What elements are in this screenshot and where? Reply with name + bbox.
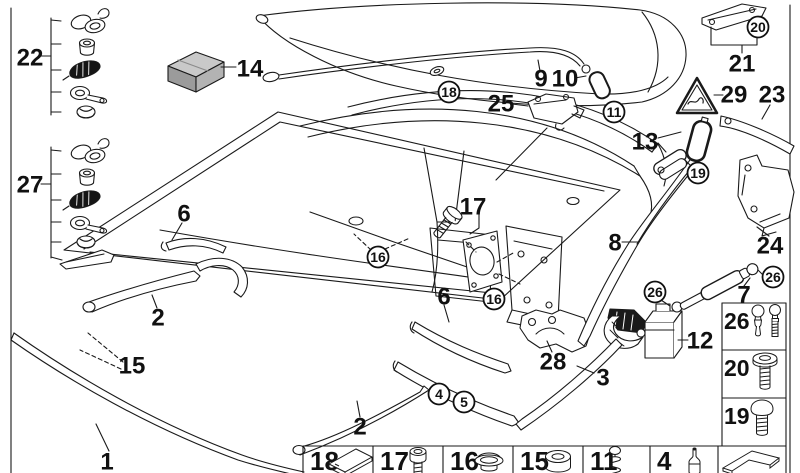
legend-number-26: 26	[724, 308, 750, 334]
fastener-column-27	[51, 139, 114, 269]
callout-7: 7	[737, 282, 750, 309]
seal-strip-2	[86, 271, 200, 312]
bracket-24	[738, 155, 794, 236]
callout-8: 8	[608, 230, 621, 257]
svg-text:5: 5	[460, 394, 468, 410]
screw-icon	[410, 448, 426, 473]
callout-2: 2	[151, 305, 164, 332]
callout-24: 24	[757, 233, 784, 260]
seal-strip-6-left	[166, 238, 226, 253]
callout-9: 9	[534, 66, 547, 93]
lock-cylinder-19	[685, 115, 714, 162]
seal-strip-2-corner	[196, 258, 248, 297]
strip-23	[720, 116, 794, 154]
callout-23: 23	[759, 82, 786, 109]
legend-number-16: 16	[450, 446, 479, 473]
callout-27: 27	[17, 172, 44, 199]
callout-circled-4: 4	[429, 384, 450, 405]
legend-number-17: 17	[380, 446, 409, 473]
fastener-column-22	[51, 9, 109, 118]
seal-strips-left	[11, 238, 304, 473]
exploded-parts-diagram: 18171615114262019 2227149102521292313824…	[0, 0, 800, 473]
legend-number-20: 20	[724, 355, 750, 381]
callout-circled-19: 19	[688, 163, 709, 184]
callout-circled-18: 18	[439, 82, 460, 103]
callout-10: 10	[552, 66, 579, 93]
seal-strip-6-center	[412, 322, 511, 373]
callout-14: 14	[237, 56, 264, 83]
flange-bolt-icon	[753, 353, 777, 389]
callout-circled-11: 11	[604, 102, 625, 123]
legend-number-18: 18	[310, 446, 339, 473]
callout-28: 28	[540, 349, 567, 376]
svg-text:16: 16	[370, 249, 386, 265]
callout-2: 2	[353, 414, 366, 441]
ball-stud-icon	[751, 400, 773, 435]
legend-number-19: 19	[724, 403, 750, 429]
cable-end-ball	[582, 65, 590, 73]
callout-circled-20: 20	[748, 17, 769, 38]
folded-strip-icon	[723, 451, 779, 473]
frame-grommet	[567, 198, 579, 205]
callout-6: 6	[437, 284, 450, 311]
callout-circled-26: 26	[645, 282, 666, 303]
seal-strip-1	[14, 333, 304, 472]
gasket-plate-17	[463, 231, 502, 292]
svg-text:16: 16	[486, 291, 502, 307]
svg-text:26: 26	[765, 269, 781, 285]
ball-pins-icon	[752, 305, 781, 337]
svg-text:11: 11	[607, 104, 622, 120]
ball-socket	[637, 329, 645, 337]
legend-number-15: 15	[520, 446, 549, 473]
callout-29: 29	[721, 82, 748, 109]
svg-text:26: 26	[647, 284, 663, 300]
callout-25: 25	[488, 91, 515, 118]
callout-15: 15	[119, 353, 146, 380]
warning-triangle-29	[677, 78, 717, 113]
callout-circled-16: 16	[368, 247, 389, 268]
callout-circled-26: 26	[763, 267, 784, 288]
cap-icon	[475, 453, 503, 471]
callout-21: 21	[729, 51, 756, 78]
parts-diagram-page: 18171615114262019 2227149102521292313824…	[0, 0, 800, 473]
callout-22: 22	[17, 45, 44, 72]
svg-text:19: 19	[690, 165, 706, 181]
pin-icon	[689, 448, 700, 473]
main-frame	[64, 91, 666, 332]
callout-13: 13	[632, 129, 659, 156]
kit-box-14	[168, 52, 224, 92]
svg-text:18: 18	[441, 84, 457, 100]
svg-text:20: 20	[750, 19, 766, 35]
callout-3: 3	[596, 365, 609, 392]
grommet-icon	[546, 451, 571, 473]
callout-1: 1	[100, 449, 113, 473]
bracket-28	[520, 310, 590, 352]
callout-17: 17	[460, 194, 487, 221]
callout-circled-5: 5	[454, 392, 475, 413]
callout-circled-16: 16	[484, 289, 505, 310]
callout-6: 6	[177, 201, 190, 228]
frame-grommet	[349, 217, 363, 225]
legend-number-4: 4	[657, 446, 672, 473]
svg-text:4: 4	[435, 386, 443, 402]
callout-12: 12	[687, 328, 714, 355]
